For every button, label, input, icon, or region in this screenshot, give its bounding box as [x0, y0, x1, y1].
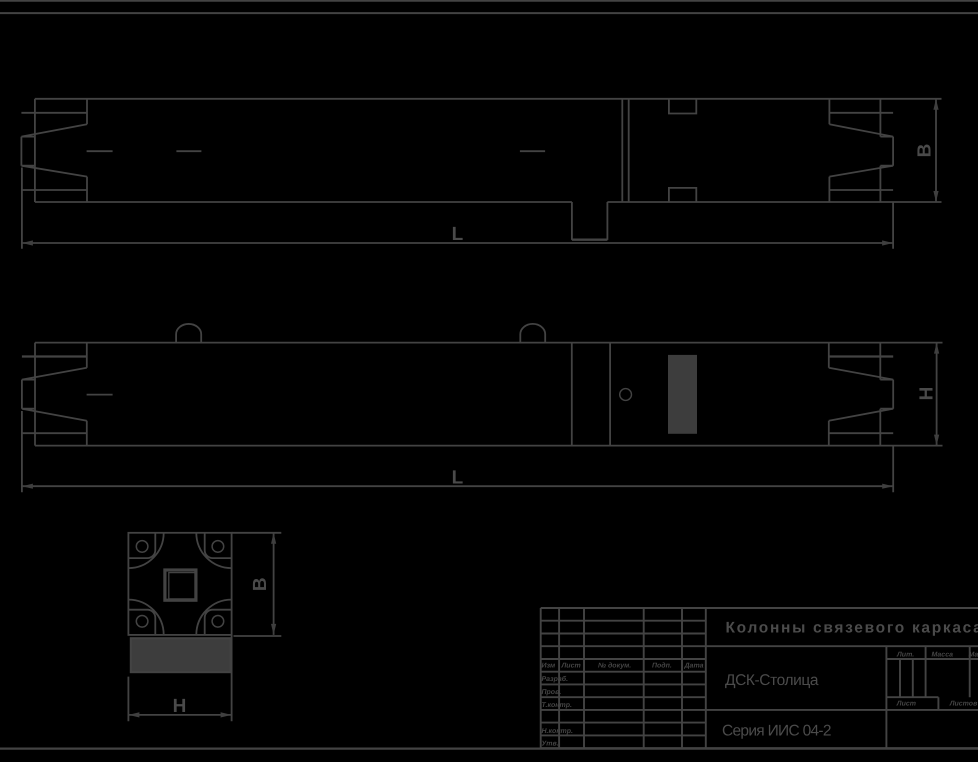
svg-text:Пров.: Пров.: [542, 689, 562, 696]
svg-text:Лист: Лист: [561, 662, 581, 669]
svg-text:Н: Н: [917, 387, 938, 401]
svg-text:Подп.: Подп.: [652, 661, 672, 669]
svg-text:Разраб.: Разраб.: [542, 675, 569, 683]
svg-text:Утв.: Утв.: [542, 741, 559, 748]
svg-text:ДСК-Столица: ДСК-Столица: [725, 672, 819, 689]
svg-text:L: L: [452, 468, 464, 489]
svg-text:В: В: [915, 144, 936, 158]
svg-text:Масштаб: Масштаб: [969, 650, 978, 658]
svg-text:Лист: Лист: [896, 701, 916, 708]
svg-text:Н: Н: [173, 696, 187, 717]
svg-text:В: В: [250, 577, 271, 591]
svg-text:L: L: [452, 224, 464, 245]
svg-text:Листов: Листов: [949, 701, 978, 708]
svg-text:Лит.: Лит.: [896, 651, 914, 658]
svg-text:Т.контр.: Т.контр.: [542, 702, 573, 709]
svg-text:Дата: Дата: [684, 662, 704, 669]
svg-text:Масса: Масса: [932, 651, 954, 658]
svg-text:№ докум.: № докум.: [598, 661, 631, 669]
svg-text:Н.контр.: Н.контр.: [542, 728, 574, 735]
svg-text:Колонны связевого каркаса: Колонны связевого каркаса: [726, 620, 978, 637]
svg-text:Изм: Изм: [542, 662, 557, 669]
svg-text:Серия ИИС 04-2: Серия ИИС 04-2: [722, 722, 831, 739]
